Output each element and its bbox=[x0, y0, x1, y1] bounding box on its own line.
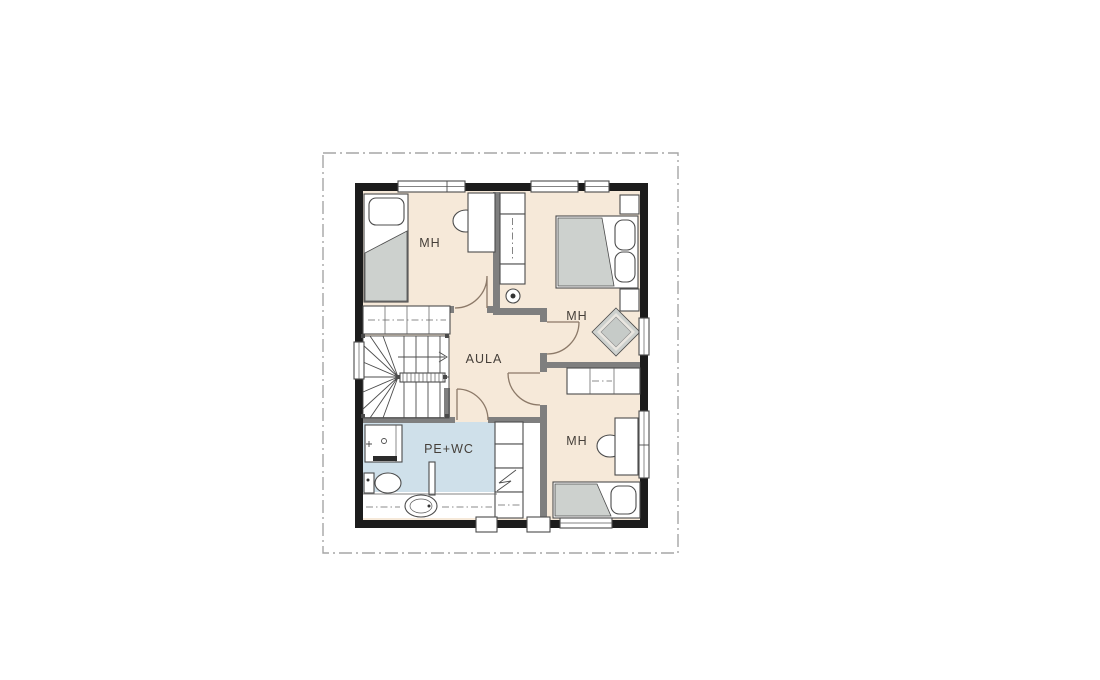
pillow bbox=[615, 252, 635, 282]
window bbox=[585, 181, 609, 192]
floor-plan-svg: MH MH MH AULA PE+WC bbox=[0, 0, 1100, 680]
toilet-symbol bbox=[364, 473, 401, 493]
wardrobe-row-2 bbox=[567, 368, 640, 394]
bathroom-closet bbox=[495, 422, 523, 518]
room-label-bedroom-top-right: MH bbox=[566, 309, 587, 323]
window bbox=[639, 318, 649, 355]
pillow bbox=[615, 220, 635, 250]
bath-partition bbox=[429, 462, 435, 495]
closet-column bbox=[500, 193, 525, 284]
window bbox=[531, 181, 578, 192]
floor-plan-page: MH MH MH AULA PE+WC bbox=[0, 0, 1100, 680]
vent bbox=[476, 517, 497, 532]
window bbox=[354, 342, 364, 379]
pillow bbox=[369, 198, 404, 225]
nightstand bbox=[620, 289, 639, 311]
room-label-hall: AULA bbox=[466, 352, 503, 366]
window bbox=[398, 181, 465, 192]
pillow bbox=[611, 486, 636, 514]
window bbox=[560, 518, 612, 528]
room-label-bedroom-top-left: MH bbox=[419, 236, 440, 250]
wardrobe-row-1 bbox=[363, 306, 450, 334]
vent bbox=[527, 517, 550, 532]
shower bbox=[365, 425, 402, 462]
room-label-bedroom-bottom-right: MH bbox=[566, 434, 587, 448]
bed-single-2 bbox=[553, 482, 640, 518]
window bbox=[639, 411, 649, 478]
nightstand bbox=[620, 195, 639, 214]
room-label-bath: PE+WC bbox=[424, 442, 474, 456]
smoke-detector-icon bbox=[506, 289, 520, 303]
bed-single-1 bbox=[364, 194, 408, 302]
